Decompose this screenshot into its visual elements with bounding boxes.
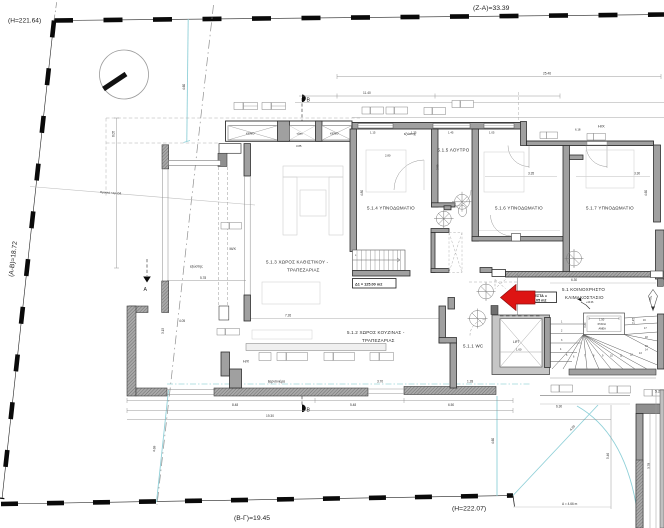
svg-text:5.46: 5.46	[606, 453, 610, 459]
svg-text:Δ1 = 125.00 m2: Δ1 = 125.00 m2	[355, 282, 382, 286]
svg-text:6.18: 6.18	[575, 128, 581, 132]
svg-text:(H=221.64): (H=221.64)	[8, 18, 41, 25]
svg-text:2.45: 2.45	[632, 318, 636, 324]
svg-text:3.70: 3.70	[377, 380, 383, 384]
svg-text:3.30: 3.30	[634, 172, 640, 176]
svg-text:A: A	[144, 287, 148, 293]
svg-text:4.60: 4.60	[182, 84, 186, 90]
svg-text:A = 4.66 m: A = 4.66 m	[562, 502, 578, 506]
svg-text:1.15: 1.15	[370, 131, 376, 135]
svg-text:ΚΕΝΌ: ΚΕΝΌ	[330, 132, 339, 136]
svg-text:5.1.4 ΥΠΝΟΔΩΜΑΤΙΟ: 5.1.4 ΥΠΝΟΔΩΜΑΤΙΟ	[367, 206, 415, 211]
svg-text:8.48: 8.48	[232, 403, 238, 407]
svg-text:ΤΡΑΠΕΖΑΡΙΑΣ: ΤΡΑΠΕΖΑΡΙΑΣ	[362, 338, 395, 343]
svg-text:6.30: 6.30	[571, 278, 577, 282]
svg-text:3.35: 3.35	[528, 172, 534, 176]
svg-text:0.80: 0.80	[584, 322, 587, 327]
svg-text:5.1.5 ΛΟΥΤΡΟ: 5.1.5 ΛΟΥΤΡΟ	[438, 148, 470, 153]
svg-text:εξώστης: εξώστης	[404, 132, 416, 136]
svg-text:7.26: 7.26	[285, 314, 291, 318]
svg-text:25.46: 25.46	[543, 72, 551, 76]
svg-text:4.05: 4.05	[179, 319, 185, 323]
svg-text:1.28: 1.28	[467, 380, 473, 384]
svg-text:3.85: 3.85	[296, 144, 302, 148]
svg-text:4.69: 4.69	[152, 445, 157, 452]
svg-text:5.1 ΚΟΙΝΟΧΡΗΣΤΟ: 5.1 ΚΟΙΝΟΧΡΗΣΤΟ	[562, 287, 605, 292]
svg-text:ΑΜΕΑ: ΑΜΕΑ	[599, 326, 607, 330]
svg-text:5.1.1 WC: 5.1.1 WC	[463, 344, 484, 349]
svg-text:5.1.2 ΧΩΡΟΣ ΚΟΥΖΙΝΑΣ -: 5.1.2 ΧΩΡΟΣ ΚΟΥΖΙΝΑΣ -	[347, 330, 405, 335]
svg-text:ΤΡΑΠΕΖΑΡΙΑΣ: ΤΡΑΠΕΖΑΡΙΑΣ	[287, 268, 320, 273]
svg-text:1.50: 1.50	[599, 317, 605, 321]
svg-text:εξώστης: εξώστης	[190, 265, 203, 269]
svg-text:11.40: 11.40	[363, 91, 371, 95]
svg-text:LIFT: LIFT	[513, 340, 520, 344]
svg-text:2.90: 2.90	[436, 164, 440, 170]
svg-text:(Z-A)=33.39: (Z-A)=33.39	[473, 5, 510, 12]
svg-text:5.1.7 ΥΠΝΟΔΩΜΑΤΙΟ: 5.1.7 ΥΠΝΟΔΩΜΑΤΙΟ	[586, 206, 634, 211]
svg-text:6.50: 6.50	[448, 403, 454, 407]
svg-text:+10.06: +10.06	[586, 301, 594, 304]
svg-text:(B-Γ)=19.45: (B-Γ)=19.45	[234, 515, 270, 522]
svg-text:3.78: 3.78	[647, 463, 651, 469]
svg-text:5.48: 5.48	[350, 403, 356, 407]
svg-text:M/X: M/X	[230, 247, 237, 251]
svg-text:H/X: H/X	[243, 360, 250, 364]
svg-text:8.05: 8.05	[112, 131, 116, 137]
svg-text:ΚΛΙΜΑΚΟΣΤΑΣΙΟ: ΚΛΙΜΑΚΟΣΤΑΣΙΟ	[565, 295, 604, 300]
svg-text:ΕΣΤΑ =: ΕΣΤΑ =	[535, 294, 548, 298]
svg-text:5.1.6 ΥΠΝΟΔΩΜΑΤΙΟ: 5.1.6 ΥΠΝΟΔΩΜΑΤΙΟ	[495, 206, 543, 211]
svg-text:(H=222.07): (H=222.07)	[452, 506, 486, 513]
svg-text:6.30: 6.30	[556, 405, 562, 409]
svg-text:ΚΕΝΌ: ΚΕΝΌ	[246, 132, 255, 136]
svg-text:2.80: 2.80	[385, 154, 391, 158]
svg-text:5.2: 5.2	[655, 390, 660, 394]
svg-text:19.30: 19.30	[266, 414, 274, 418]
svg-text:ΣΤΑΣΗ: ΣΤΑΣΗ	[598, 322, 606, 326]
svg-text:4.60: 4.60	[644, 190, 648, 196]
svg-text:1.60: 1.60	[516, 348, 522, 352]
svg-text:1.05: 1.05	[489, 131, 495, 135]
svg-text:4.80: 4.80	[360, 190, 364, 196]
svg-text:ξαρντινιέρα: ξαρντινιέρα	[268, 380, 285, 384]
svg-text:5.1.3 ΧΩΡΟΣ ΚΑΘΙΣΤΙΚΟΥ -: 5.1.3 ΧΩΡΟΣ ΚΑΘΙΣΤΙΚΟΥ -	[266, 260, 329, 265]
svg-text:1.45: 1.45	[448, 131, 454, 135]
svg-text:4.60: 4.60	[491, 438, 495, 444]
svg-text:τζάκι: τζάκι	[297, 132, 303, 136]
svg-text:3.15: 3.15	[161, 328, 165, 334]
svg-text:.05 m2: .05 m2	[535, 299, 546, 303]
svg-text:5.78: 5.78	[200, 276, 206, 280]
svg-text:H/X: H/X	[598, 124, 605, 129]
